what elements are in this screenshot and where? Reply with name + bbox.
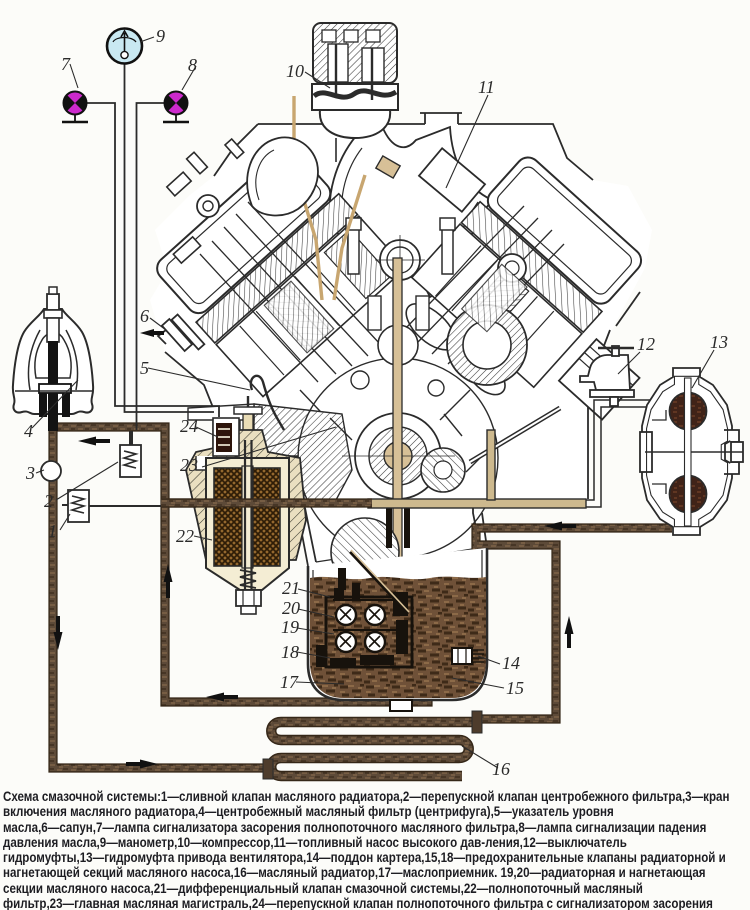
svg-text:20: 20 — [282, 598, 300, 618]
svg-text:16: 16 — [492, 759, 510, 779]
svg-text:11: 11 — [478, 77, 495, 97]
svg-text:18: 18 — [281, 642, 299, 662]
svg-text:2: 2 — [44, 491, 53, 511]
svg-text:22: 22 — [176, 526, 194, 546]
svg-text:4: 4 — [24, 421, 33, 441]
svg-text:10: 10 — [286, 61, 304, 81]
svg-text:21: 21 — [282, 578, 300, 598]
svg-text:23: 23 — [180, 455, 198, 475]
svg-text:1: 1 — [48, 521, 57, 541]
svg-text:15: 15 — [506, 678, 524, 698]
svg-text:9: 9 — [156, 26, 165, 46]
svg-text:24: 24 — [180, 416, 198, 436]
svg-text:3: 3 — [25, 463, 35, 483]
svg-text:6: 6 — [140, 306, 149, 326]
svg-text:12: 12 — [637, 334, 655, 354]
svg-text:19: 19 — [281, 617, 299, 637]
svg-text:13: 13 — [710, 332, 728, 352]
svg-text:14: 14 — [502, 653, 520, 673]
svg-text:5: 5 — [140, 358, 149, 378]
svg-text:7: 7 — [61, 54, 71, 74]
